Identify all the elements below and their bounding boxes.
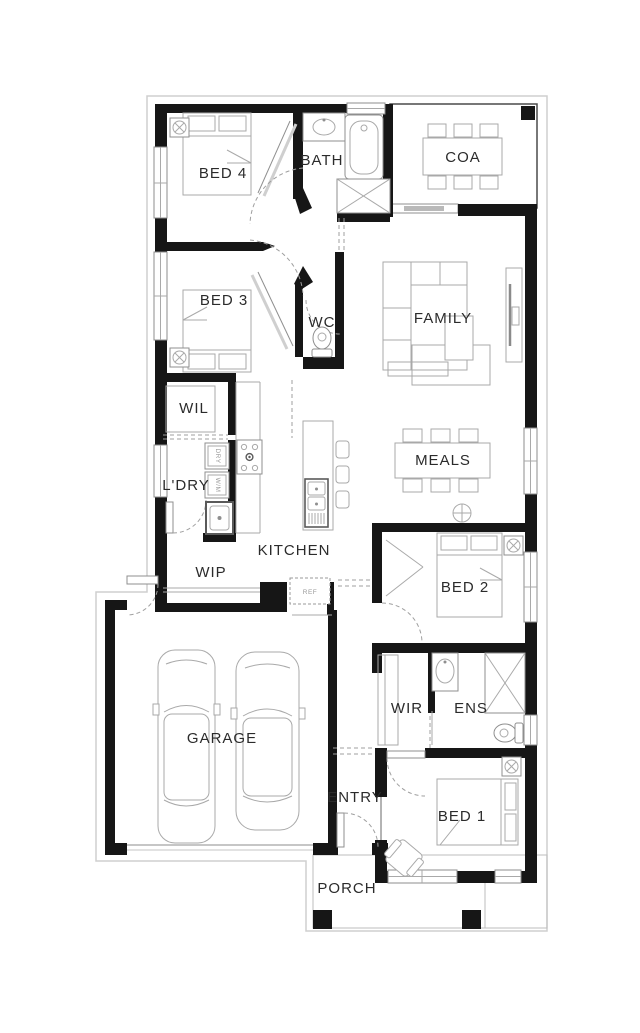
- cavity-slider: [258, 121, 296, 196]
- label-bed2: BED 2: [441, 579, 489, 596]
- toilet-icon: [494, 723, 523, 743]
- bathtub-icon: [345, 115, 383, 179]
- ens-vanity basin-icon: [432, 653, 458, 745]
- porch-post: [313, 910, 332, 929]
- shower-icon: [337, 179, 390, 213]
- label-family: FAMILY: [414, 310, 472, 327]
- ceiling-fan-icon: [504, 536, 523, 555]
- label-wc: WC: [309, 314, 336, 331]
- label-entry: ENTRY: [327, 789, 383, 806]
- floor-plan-svg: BED 4 BATH COA BED 3 WC FAMILY WIL MEALS…: [0, 0, 640, 1033]
- label-coa: COA: [445, 149, 481, 166]
- pantry-bench: [163, 588, 260, 592]
- fridge-appliance: [290, 578, 332, 615]
- label-porch: PORCH: [317, 880, 376, 897]
- label-wir: WIR: [391, 700, 423, 717]
- ceiling-fan-icon: [502, 757, 521, 776]
- label-dryer: DRY: [214, 448, 221, 463]
- cavity-slider: [252, 272, 293, 349]
- bath-vanity basin-icon: [303, 113, 345, 141]
- label-wip: WIP: [195, 564, 226, 581]
- ceiling-fan-icon: [170, 348, 189, 367]
- light-icon: [453, 504, 471, 522]
- ceiling-fan-icon: [170, 118, 189, 137]
- label-ldry: L'DRY: [162, 477, 210, 494]
- window-icon: [154, 252, 167, 340]
- bed1-door door-swing-icon: [387, 751, 425, 796]
- label-bed4: BED 4: [199, 165, 247, 182]
- cooktop-icon: [237, 440, 262, 474]
- label-wil: WIL: [179, 400, 209, 417]
- label-kitchen: KITCHEN: [258, 542, 331, 559]
- robe-doors: [386, 540, 423, 596]
- bed-icon: [437, 533, 502, 617]
- window-icon: [524, 428, 537, 494]
- label-washer: W/M: [214, 478, 221, 493]
- island-bench sink-icon: [303, 421, 333, 530]
- label-bed3: BED 3: [200, 292, 248, 309]
- laundry-tub sink-icon: [206, 502, 233, 534]
- floor-plan-page: BED 4 BATH COA BED 3 WC FAMILY WIL MEALS…: [0, 0, 640, 1033]
- bed2-door door-swing-icon: [382, 603, 422, 643]
- label-bath: BATH: [301, 152, 344, 169]
- label-fridge: REF: [303, 589, 318, 596]
- window-icon: [347, 103, 385, 114]
- window-icon: [524, 552, 537, 622]
- window-icon: [524, 715, 537, 745]
- wip-door door-swing-icon: [166, 500, 206, 533]
- coa-post: [521, 106, 535, 120]
- entry-door door-swing-icon: [337, 813, 378, 847]
- label-meals: MEALS: [415, 452, 471, 469]
- garage-side-door door-swing-icon: [127, 576, 158, 615]
- label-garage: GARAGE: [187, 730, 257, 747]
- label-bed1: BED 1: [438, 808, 486, 825]
- toilet-icon: [312, 327, 332, 357]
- shower-icon: [485, 653, 525, 713]
- tv-icon: [506, 268, 522, 362]
- window-icon: [154, 147, 167, 218]
- bed-icon: [183, 113, 251, 195]
- stools: [336, 441, 349, 508]
- porch-post: [462, 910, 481, 929]
- window-icon: [495, 870, 521, 883]
- label-ens: ENS: [454, 700, 488, 717]
